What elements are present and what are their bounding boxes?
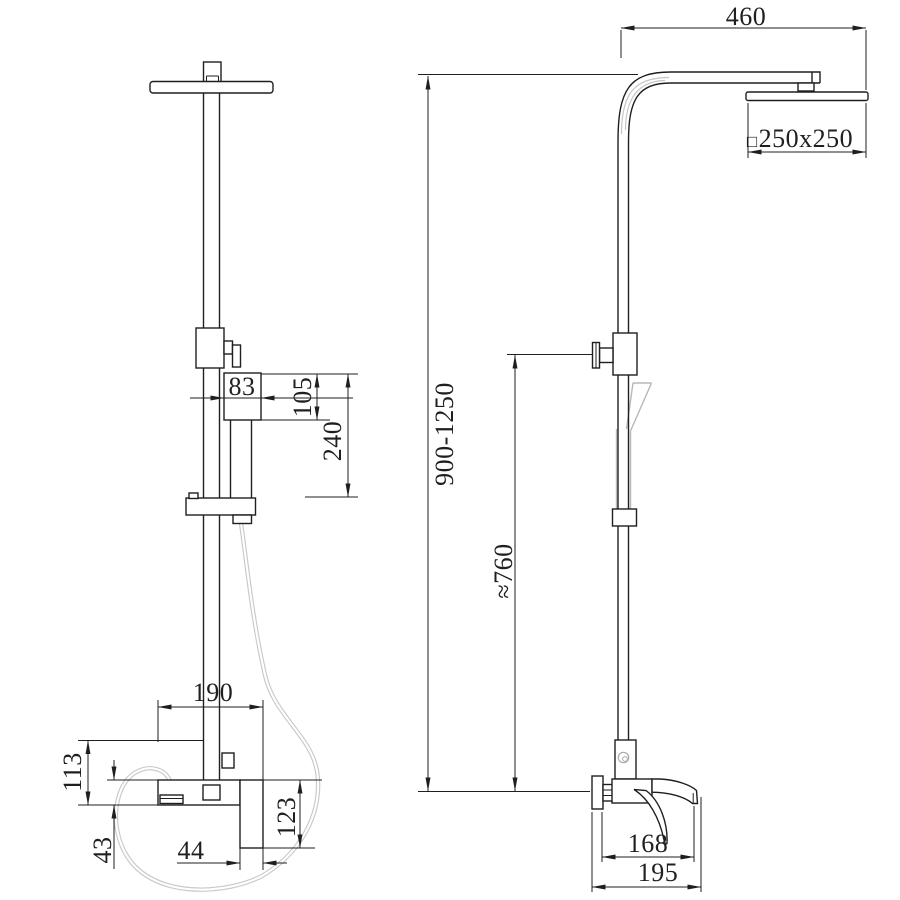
hose-outlet (233, 515, 252, 524)
dim-label-43: 43 (88, 837, 117, 864)
dim-label-760: ≈760 (489, 543, 518, 598)
slider-block-side (613, 333, 637, 375)
wall-escutcheon (592, 776, 603, 809)
slider-knob (593, 343, 614, 369)
dim-label-168: 168 (628, 829, 669, 858)
dim-label-460: 460 (726, 2, 767, 31)
technical-drawing: 83 105 240 190 113 43 123 44 460 □250x25… (0, 0, 900, 900)
head-connector (204, 62, 222, 82)
slider-block-front (196, 328, 224, 368)
side-view (592, 72, 868, 844)
riser-pipe (204, 93, 220, 780)
dim-label-83: 83 (229, 372, 256, 401)
dim-label-240: 240 (318, 421, 347, 462)
diverter-lever (224, 341, 241, 367)
dimensions-side (418, 28, 866, 892)
hose-nut (160, 795, 183, 804)
dim-label-250x250: □250x250 (747, 124, 853, 153)
diverter-knob-front (222, 753, 234, 768)
hand-shower-wand-side (617, 383, 652, 509)
slide-bar (186, 493, 256, 515)
riser-pipe-side (618, 142, 629, 740)
tub-spout (652, 779, 698, 804)
hand-shower-wand-front (231, 420, 252, 498)
dim-label-195: 195 (638, 858, 679, 887)
dim-label-113: 113 (58, 752, 87, 792)
square-symbol: □ (747, 132, 758, 151)
dim-label-123: 123 (272, 797, 301, 838)
cartridge-square (203, 785, 220, 800)
front-view (116, 62, 318, 890)
wand-bracket (613, 509, 637, 526)
dim-label-900-1250: 900-1250 (430, 382, 459, 486)
dimension-labels: 83 105 240 190 113 43 123 44 460 □250x25… (58, 2, 853, 887)
rain-shower-head-side (746, 92, 868, 101)
dim-label-190: 190 (193, 678, 234, 707)
dim-label-105: 105 (288, 377, 317, 418)
mixer-front (158, 753, 263, 848)
rain-shower-head-front (150, 82, 273, 94)
mixer-handle-front (240, 780, 263, 848)
dim-label-44: 44 (178, 836, 205, 865)
